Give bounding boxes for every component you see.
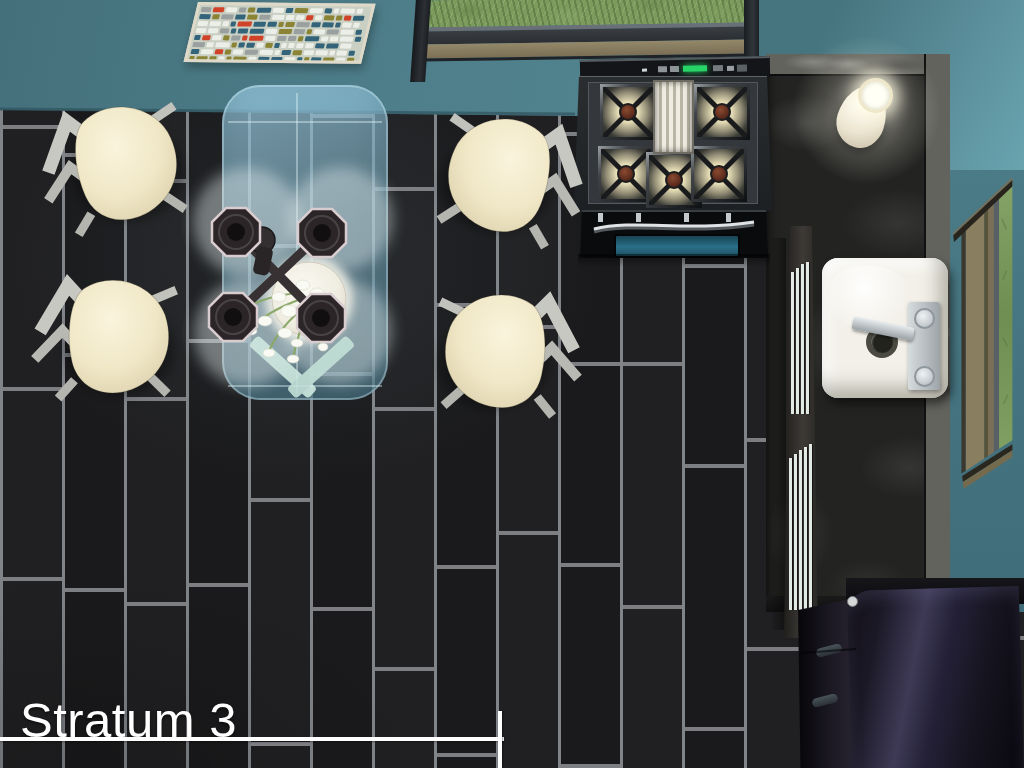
dining-chair[interactable] (30, 271, 182, 411)
room-view: Stratum 3 (0, 0, 1024, 768)
dining-chair[interactable] (435, 114, 583, 250)
dining-chair[interactable] (42, 103, 188, 237)
caption-underline (0, 737, 504, 741)
caption-tick (498, 711, 502, 768)
dining-chair[interactable] (434, 290, 580, 424)
furniture-overlay (0, 0, 1024, 768)
